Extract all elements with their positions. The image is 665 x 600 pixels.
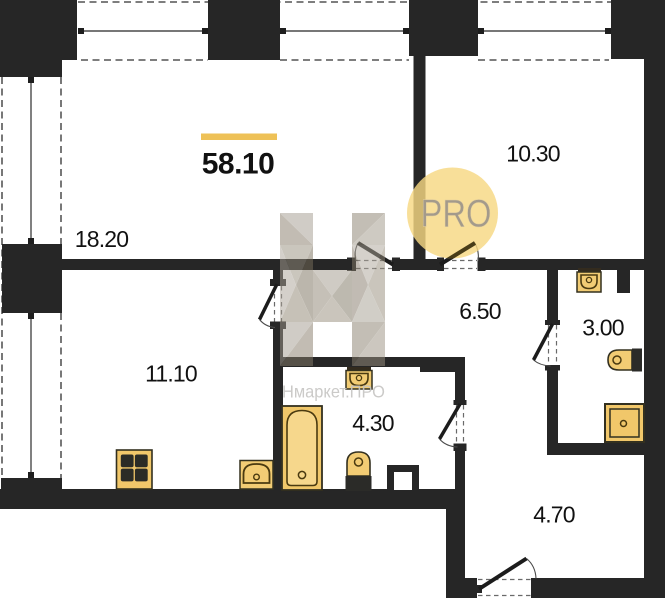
svg-text:4.30: 4.30: [352, 410, 394, 436]
svg-text:PRO: PRO: [421, 192, 492, 235]
svg-text:6.50: 6.50: [459, 298, 501, 324]
svg-text:3.00: 3.00: [582, 315, 624, 341]
svg-text:18.20: 18.20: [75, 226, 129, 252]
svg-text:4.70: 4.70: [533, 502, 575, 528]
svg-text:Нмаркет.ПРО: Нмаркет.ПРО: [282, 382, 385, 402]
svg-text:58.10: 58.10: [202, 148, 275, 181]
svg-text:10.30: 10.30: [506, 141, 560, 167]
svg-text:11.10: 11.10: [145, 361, 197, 387]
